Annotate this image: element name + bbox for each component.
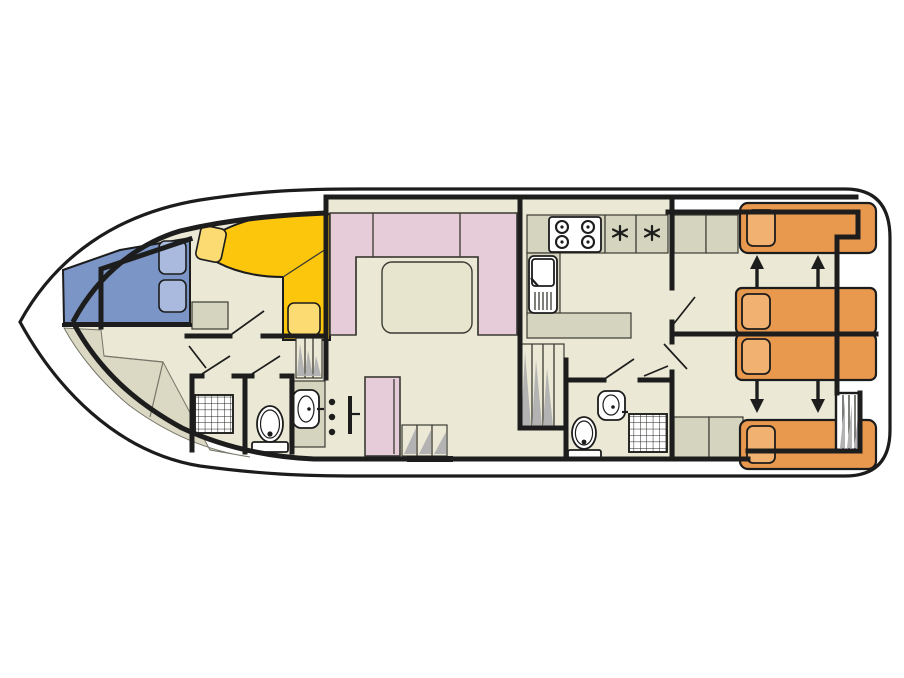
- wardrobe-cell: [706, 215, 738, 253]
- bed-steps-icon: [402, 425, 447, 456]
- shower-icon: [629, 414, 667, 452]
- wardrobe-cell: [674, 417, 709, 458]
- dining-table: [382, 262, 472, 333]
- pillow-icon: [747, 210, 775, 246]
- pillow-icon: [742, 294, 770, 329]
- pillow-icon: [742, 339, 770, 374]
- stairs-fore-icon: [296, 338, 322, 378]
- counter-return: [527, 313, 631, 338]
- galley-sink-icon: [529, 256, 557, 313]
- boat-floor-plan: [0, 0, 904, 678]
- stove-icon: [549, 217, 601, 252]
- wardrobe-cell: [709, 417, 743, 458]
- washbasin-icon: [290, 381, 325, 447]
- ladder-icon: [836, 393, 861, 451]
- nightstand: [192, 302, 228, 329]
- cushion-icon: [288, 303, 320, 335]
- washbasin-icon: [598, 391, 628, 420]
- deck-plan-svg: [0, 0, 904, 678]
- coat-hooks-icon: [329, 399, 335, 435]
- wardrobe-cell: [674, 215, 706, 253]
- shower-icon: [195, 395, 233, 433]
- pillow-icon: [747, 426, 775, 463]
- stairs-starboard-icon: [521, 344, 564, 428]
- pink-single-bed: [365, 377, 400, 456]
- pillow-icon: [159, 280, 186, 312]
